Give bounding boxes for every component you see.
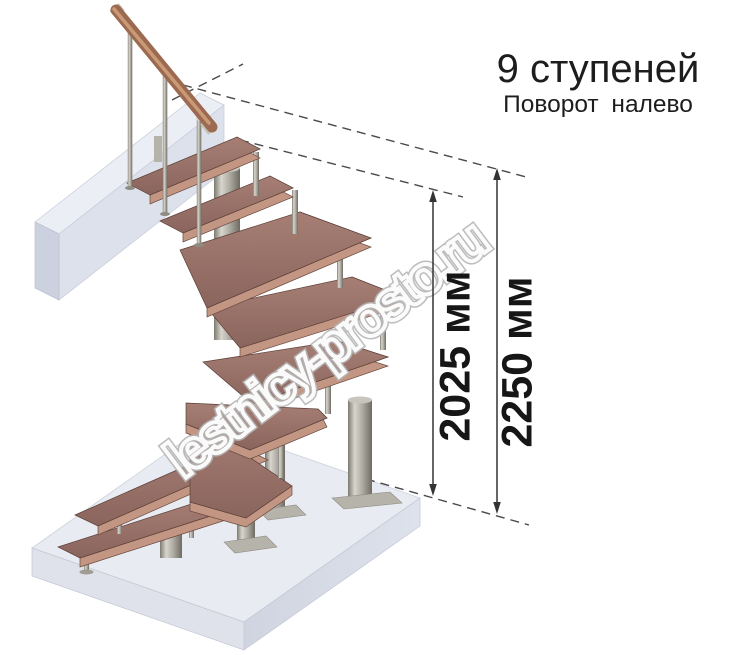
dimension-2250: 2250 мм bbox=[493, 168, 541, 514]
arrowhead-up bbox=[429, 190, 437, 202]
page-title: 9 ступеней bbox=[497, 47, 700, 91]
column-top-cap bbox=[348, 397, 372, 404]
baluster bbox=[163, 67, 168, 214]
staircase-diagram: lestnicy-prosto.ru lestnicy-prosto.ru 20… bbox=[0, 0, 744, 655]
post-base bbox=[80, 570, 94, 575]
dimension-label-2025: 2025 мм bbox=[431, 270, 479, 441]
baluster-base bbox=[125, 186, 135, 190]
arrowhead-up bbox=[493, 168, 501, 180]
arrowhead-down bbox=[429, 484, 437, 496]
beam-end-face bbox=[35, 222, 59, 300]
dimension-label-2250: 2250 мм bbox=[493, 276, 541, 447]
baluster-base bbox=[160, 212, 170, 216]
arrowhead-down bbox=[493, 502, 501, 514]
baluster bbox=[197, 116, 202, 245]
baluster bbox=[128, 24, 133, 188]
baluster-base bbox=[194, 243, 204, 247]
staircase-scene: lestnicy-prosto.ru lestnicy-prosto.ru 20… bbox=[0, 0, 744, 655]
page-subtitle: Поворот налево bbox=[503, 91, 693, 118]
column-right bbox=[348, 400, 372, 502]
wall-bracket bbox=[154, 136, 162, 162]
